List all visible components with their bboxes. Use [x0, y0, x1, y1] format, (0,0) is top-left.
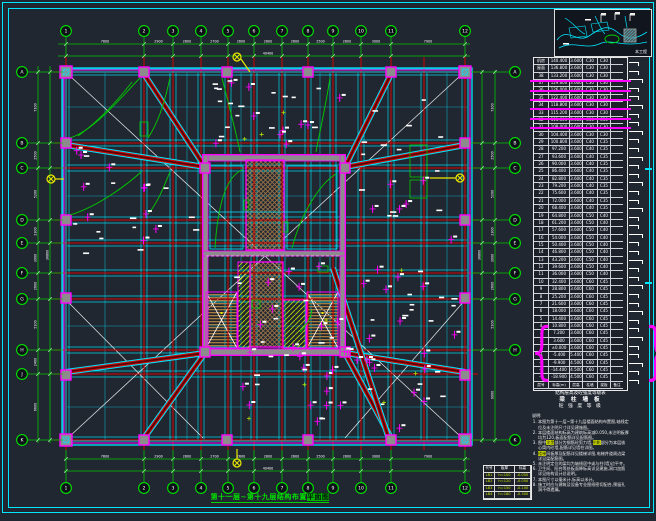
grid-bubble-label: 3 — [172, 29, 175, 35]
column — [460, 215, 470, 225]
grid-bubble-label: 6 — [253, 29, 256, 35]
storey-table-row: 1343.2003.600C50C40 — [534, 257, 627, 264]
dimension-text: 2500 — [316, 455, 324, 459]
grid-bubble-label: J — [20, 372, 22, 378]
grid-bubble-label: 5 — [227, 29, 230, 35]
dimension-text: 7900 — [424, 455, 432, 459]
column — [340, 163, 350, 173]
dimension-text: 2800 — [343, 455, 351, 459]
grid-bubble-label: 1 — [65, 29, 68, 35]
dimension-text: 5200 — [491, 190, 495, 198]
storey-table-row: 2275.6003.600C40C35 — [534, 190, 627, 197]
slab-table-row: LB2h=120-0.050 — [484, 479, 531, 486]
grid-bubble-label: 1 — [65, 486, 68, 492]
plan-title-main: 第十一层~第十九层结构布置 — [211, 493, 307, 501]
slab-table-row: LB4h=180-0.300 — [484, 492, 531, 499]
site-map-label: 本工程 — [635, 50, 647, 54]
note-item: 图中涂黑部分为钢筋砼剪力墙,阴影部分为本层核心筒内砼墙,配筋详见墙柱详图。 — [538, 440, 629, 450]
dimension-text: 2600 — [491, 282, 495, 290]
storey-table-row: 2379.2003.600C40C35 — [534, 183, 627, 190]
grid-bubble-label: 5 — [227, 486, 230, 492]
grid-bubble-label: 10 — [358, 29, 364, 35]
storey-table-row: 2482.8003.600C40C35 — [534, 176, 627, 183]
column — [303, 67, 313, 77]
storey-table-row: 2172.0003.600C40C35 — [534, 198, 627, 205]
grid-bubble-label: 6 — [253, 486, 256, 492]
grid-bubble-label: H — [20, 348, 23, 354]
grid-bubble-label: 2 — [143, 486, 146, 492]
dimension-text: 7800 — [101, 455, 109, 459]
column — [222, 435, 232, 445]
column — [200, 163, 210, 173]
grid-bubble-label: G — [20, 297, 24, 303]
dimension-text: 7100 — [491, 103, 495, 111]
column — [139, 435, 149, 445]
dimension-text: 3000 — [34, 254, 38, 262]
table-subtitle-2: 砼 强 度 等 级 — [532, 404, 629, 410]
grid-bubble-label: 11 — [388, 29, 394, 35]
grid-bubble-label: D — [20, 218, 24, 224]
grid-bubble-label: G — [513, 297, 517, 303]
storey-table-row: 1757.6003.600C50C40 — [534, 227, 627, 234]
grid-bubble-label: E — [21, 241, 24, 247]
highlight-bar — [530, 118, 631, 120]
grid-bubble-label: 7 — [281, 486, 284, 492]
column — [139, 67, 149, 77]
column — [303, 435, 313, 445]
grid-bubble-label: 4 — [200, 486, 203, 492]
storey-table-row: 2690.0003.600C40C35 — [534, 161, 627, 168]
highlight-bar — [530, 99, 631, 101]
grid-bubble-label: 4 — [200, 29, 203, 35]
storey-table-row: 1239.6003.600C50C40 — [534, 264, 627, 271]
grid-bubble-label: 8 — [307, 29, 310, 35]
storey-table-row: 2068.4003.600C40C35 — [534, 205, 627, 212]
storey-table-row: 38133.2003.600C30C30 — [534, 73, 627, 80]
column — [61, 370, 71, 380]
storey-table-row: 机房140.4003.600C30C30 — [534, 58, 627, 65]
highlight-bar — [530, 80, 631, 82]
storey-table-row: 1964.8003.600C50C40 — [534, 213, 627, 220]
storey-table-row: 2586.4003.600C40C35 — [534, 168, 627, 175]
dimension-text: 2500 — [491, 151, 495, 159]
grid-bubble-label: 8 — [307, 486, 310, 492]
storey-table-row: 1550.4003.600C50C40 — [534, 242, 627, 249]
dimension-text: 2800 — [264, 455, 272, 459]
highlight-bar — [530, 127, 631, 129]
slab-legend-table: 代号板厚标高LB1h=100-0.050LB2h=120-0.050LB3h=1… — [483, 465, 532, 500]
dimension-text: 2700 — [210, 40, 218, 44]
storey-table-row: 825.2003.600C60C45 — [534, 294, 627, 301]
site-map-drawing — [555, 10, 649, 54]
storey-table-row: 29100.8003.600C40C35 — [534, 139, 627, 146]
dimension-text: 3000 — [372, 455, 380, 459]
dimension-text: 5100 — [34, 320, 38, 328]
storey-table-row: 721.6003.600C60C45 — [534, 301, 627, 308]
grid-bubble-label: F — [21, 271, 24, 277]
dimension-text: 2900 — [154, 455, 162, 459]
table-remark-brackets — [629, 62, 649, 390]
dimension-text: 2600 — [291, 455, 299, 459]
column — [222, 67, 232, 77]
dimension-text: 2300 — [34, 227, 38, 235]
border-tick — [645, 168, 652, 170]
storey-table-row: 1654.0003.600C50C40 — [534, 235, 627, 242]
grid-bubble-label: 3 — [172, 486, 175, 492]
grid-bubble-label: E — [514, 241, 517, 247]
dimension-text: 2300 — [491, 227, 495, 235]
storey-table-row: 屋面136.8003.600C30C30 — [534, 65, 627, 72]
dimension-text: 2500 — [316, 40, 324, 44]
grid-bubble-label: F — [514, 271, 517, 277]
plan-title: 第十一层~第十九层结构布置平面图 — [170, 493, 370, 502]
storey-table-row: 928.8003.600C60C45 — [534, 286, 627, 293]
notes-label: 说明: — [532, 413, 629, 418]
storey-table-row: 1861.2003.600C50C40 — [534, 220, 627, 227]
storey-table-row: 2897.2003.600C40C35 — [534, 146, 627, 153]
dimension-text: 2700 — [210, 455, 218, 459]
dimension-text: 7800 — [101, 40, 109, 44]
dimension-text: 2800 — [183, 455, 191, 459]
grid-bubble-label: 9 — [332, 29, 335, 35]
note-item: 卫生间、阳台等处板面降标高详见建施,洞口加筋详见结构设计总说明。 — [538, 466, 629, 476]
storey-table-row: 1136.0003.600C50C40 — [534, 271, 627, 278]
slab-table-row: LB3h=150-0.100 — [484, 486, 531, 493]
notes-list: 本图为第十一层~第十九层楼面结构布置图,轴线定位及未注明尺寸详见建施图。本层楼面… — [532, 419, 629, 492]
grid-bubble-label: 12 — [462, 29, 468, 35]
note-item: 施工时应与建筑及设备专业图纸密切配合,预留孔洞不得遗漏。 — [538, 482, 629, 492]
column — [460, 138, 470, 148]
grid-bubble-label: 2 — [143, 29, 146, 35]
storey-table-row: 33115.2003.600C30C30 — [534, 110, 627, 117]
slab-table-header: 代号板厚标高 — [484, 466, 531, 473]
dimension-text: 2600 — [237, 40, 245, 44]
highlight-bar — [530, 108, 631, 110]
dimension-text: 3000 — [372, 40, 380, 44]
table-subtitle-1: 梁 柱 墙 板 — [532, 397, 629, 404]
grid-bubble-label: C — [20, 166, 23, 172]
grid-bubble-label: 10 — [358, 486, 364, 492]
storey-table-row: 30104.4003.600C30C30 — [534, 132, 627, 139]
grid-bubble-label: B — [513, 141, 516, 147]
column — [386, 67, 396, 77]
grid-bubble-label: 12 — [462, 486, 468, 492]
dimension-text: 2600 — [34, 282, 38, 290]
grid-bubble-label: 9 — [332, 486, 335, 492]
dimension-text: 36800 — [478, 250, 482, 261]
storey-table-row: 1032.4003.600C60C45 — [534, 279, 627, 286]
dimension-text: 2600 — [237, 455, 245, 459]
grid-bubble-label: C — [513, 166, 516, 172]
dimension-text: 5100 — [491, 320, 495, 328]
cad-sheet: 7800290028002700260028002600250028003000… — [0, 0, 656, 521]
dimension-text: 7900 — [424, 40, 432, 44]
dimension-text: 2500 — [34, 151, 38, 159]
dimension-text: 2900 — [154, 40, 162, 44]
note-item: 本层楼面结构标高为建筑标高减0.050,未注明板厚均为120,板面配筋详见配筋图… — [538, 430, 629, 440]
note-item: 本图为第十一层~第十九层楼面结构布置图,轴线定位及未注明尺寸详见建施图。 — [538, 419, 629, 429]
notes-block: 结构层高及砼强度等级表 梁 柱 墙 板 砼 强 度 等 级 说明: 本图为第十一… — [532, 391, 629, 492]
column — [460, 370, 470, 380]
highlight-bar — [530, 90, 631, 92]
storey-table-row: 1446.8003.600C50C40 — [534, 249, 627, 256]
dimension-text: 40400 — [263, 467, 274, 471]
grid-bubble-label: D — [513, 218, 517, 224]
dimension-text: 7100 — [34, 103, 38, 111]
dimension-text: 2800 — [343, 40, 351, 44]
site-location-map: 本工程 — [554, 9, 652, 57]
grid-bubble-label: 11 — [388, 486, 394, 492]
dimension-text: 36800 — [46, 250, 50, 261]
column — [200, 347, 210, 357]
column — [460, 293, 470, 303]
grid-bubble-label: H — [513, 348, 516, 354]
dimension-text: 3000 — [491, 254, 495, 262]
plan-title-highlight: 平面图 — [307, 493, 330, 501]
dimension-text: 2800 — [183, 40, 191, 44]
storey-table-row: 2793.6003.600C40C35 — [534, 154, 627, 161]
column — [386, 435, 396, 445]
column — [61, 293, 71, 303]
dimension-text: 2600 — [291, 40, 299, 44]
table-brace-left: { — [531, 320, 553, 382]
grid-bubble-label: B — [20, 141, 23, 147]
dimension-text: 2400 — [34, 358, 38, 366]
dimension-text: 40400 — [263, 52, 274, 56]
border-tick — [645, 282, 652, 284]
grid-bubble-label: 7 — [281, 29, 284, 35]
note-item: 楼梯间板厚及配筋详见楼梯详图,电梯井道周边梁详见梁配筋图。 — [538, 451, 629, 461]
dimension-text: 2800 — [264, 40, 272, 44]
dimension-text: 5200 — [34, 190, 38, 198]
slab-table-row: LB1h=100-0.050 — [484, 473, 531, 480]
dimension-text: 9000 — [491, 391, 495, 399]
dimension-text: 6600 — [34, 403, 38, 411]
